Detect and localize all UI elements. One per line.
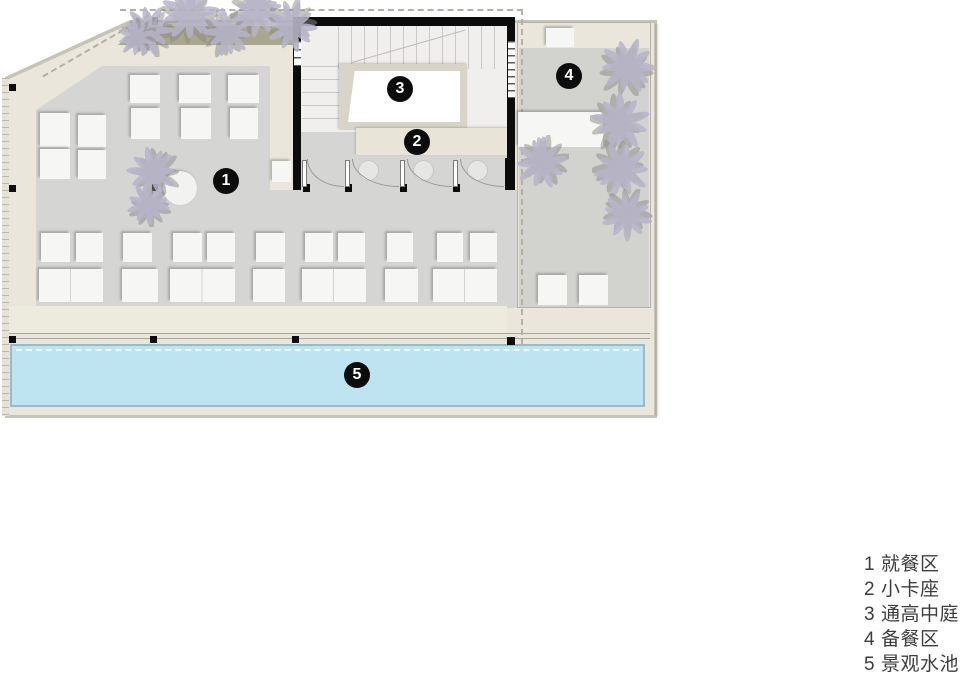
table [40, 113, 70, 147]
table [305, 233, 333, 262]
table [181, 108, 211, 139]
legend-item-label: 备餐区 [881, 629, 940, 650]
table [256, 233, 285, 262]
table [41, 233, 70, 262]
structural-column [292, 336, 299, 343]
structural-column [152, 17, 158, 25]
table [173, 233, 202, 262]
legend-item-2: 2小卡座 [864, 577, 960, 602]
legend-item-number: 1 [864, 552, 877, 577]
legend-item-5: 5景观水池 [864, 652, 960, 677]
stair-treads-top [338, 25, 506, 69]
zone-badge-3: 3 [387, 76, 413, 102]
booth-bench [356, 128, 512, 155]
table [470, 233, 497, 262]
door-post [345, 160, 350, 187]
table [76, 233, 103, 262]
table [272, 161, 291, 182]
table-pair [302, 269, 366, 302]
table [131, 108, 160, 139]
prep-area-border [517, 22, 651, 308]
table [78, 115, 106, 147]
table [518, 112, 603, 147]
zone-badge-5: 5 [344, 362, 370, 388]
table [130, 75, 160, 103]
structural-column [507, 337, 515, 345]
legend-item-3: 3通高中庭 [864, 602, 960, 627]
table [579, 275, 608, 305]
pool-waterline [16, 349, 639, 351]
zone-badge-1: 1 [213, 168, 239, 194]
table [437, 233, 463, 262]
zone-divider-dashed [521, 9, 523, 345]
window-east [508, 41, 515, 98]
legend-item-4: 4备餐区 [864, 627, 960, 652]
door-post [302, 160, 307, 187]
zone-badge-2: 2 [404, 129, 430, 155]
table [546, 28, 574, 47]
table [230, 108, 258, 139]
window-west [294, 41, 301, 66]
legend-item-number: 2 [864, 577, 877, 602]
pool-edge-wall [9, 333, 650, 339]
south-walkway [9, 306, 507, 333]
table [179, 75, 211, 103]
landscape-pool [10, 344, 645, 407]
structural-column [150, 336, 157, 343]
round-table [163, 171, 197, 205]
floor-plan: 12345 [0, 0, 660, 430]
left-wall-hatch [2, 78, 9, 416]
property-line-top [120, 9, 523, 11]
table-pair [433, 269, 497, 302]
door-post [400, 160, 405, 187]
table [207, 233, 235, 262]
legend-item-label: 景观水池 [881, 654, 959, 675]
legend-item-number: 3 [864, 602, 877, 627]
table [385, 269, 418, 302]
legend-item-label: 就餐区 [881, 554, 940, 575]
table-pair [170, 269, 235, 302]
legend-item-label: 通高中庭 [881, 604, 959, 625]
table [253, 269, 285, 302]
structural-column [9, 336, 16, 343]
structural-column [152, 184, 158, 191]
legend-item-label: 小卡座 [881, 579, 940, 600]
table-pair [39, 269, 103, 302]
page: { "title": "restaurant-floor-plan", "col… [0, 0, 960, 678]
legend-item-number: 4 [864, 627, 877, 652]
door-post [453, 160, 458, 187]
table [40, 149, 70, 179]
table [122, 269, 158, 302]
structural-column [9, 185, 16, 192]
plan-right-shadow [655, 24, 660, 416]
table [78, 150, 106, 179]
legend-item-number: 5 [864, 652, 877, 677]
legend-item-1: 1就餐区 [864, 552, 960, 577]
wall-north [293, 17, 515, 26]
table [228, 75, 259, 103]
table [538, 275, 567, 305]
structural-column [9, 84, 16, 91]
table [387, 233, 413, 262]
structural-column [505, 158, 515, 190]
table [123, 233, 152, 262]
table [338, 233, 365, 262]
legend: 1就餐区2小卡座3通高中庭4备餐区5景观水池 [864, 552, 960, 677]
zone-badge-4: 4 [556, 63, 582, 89]
